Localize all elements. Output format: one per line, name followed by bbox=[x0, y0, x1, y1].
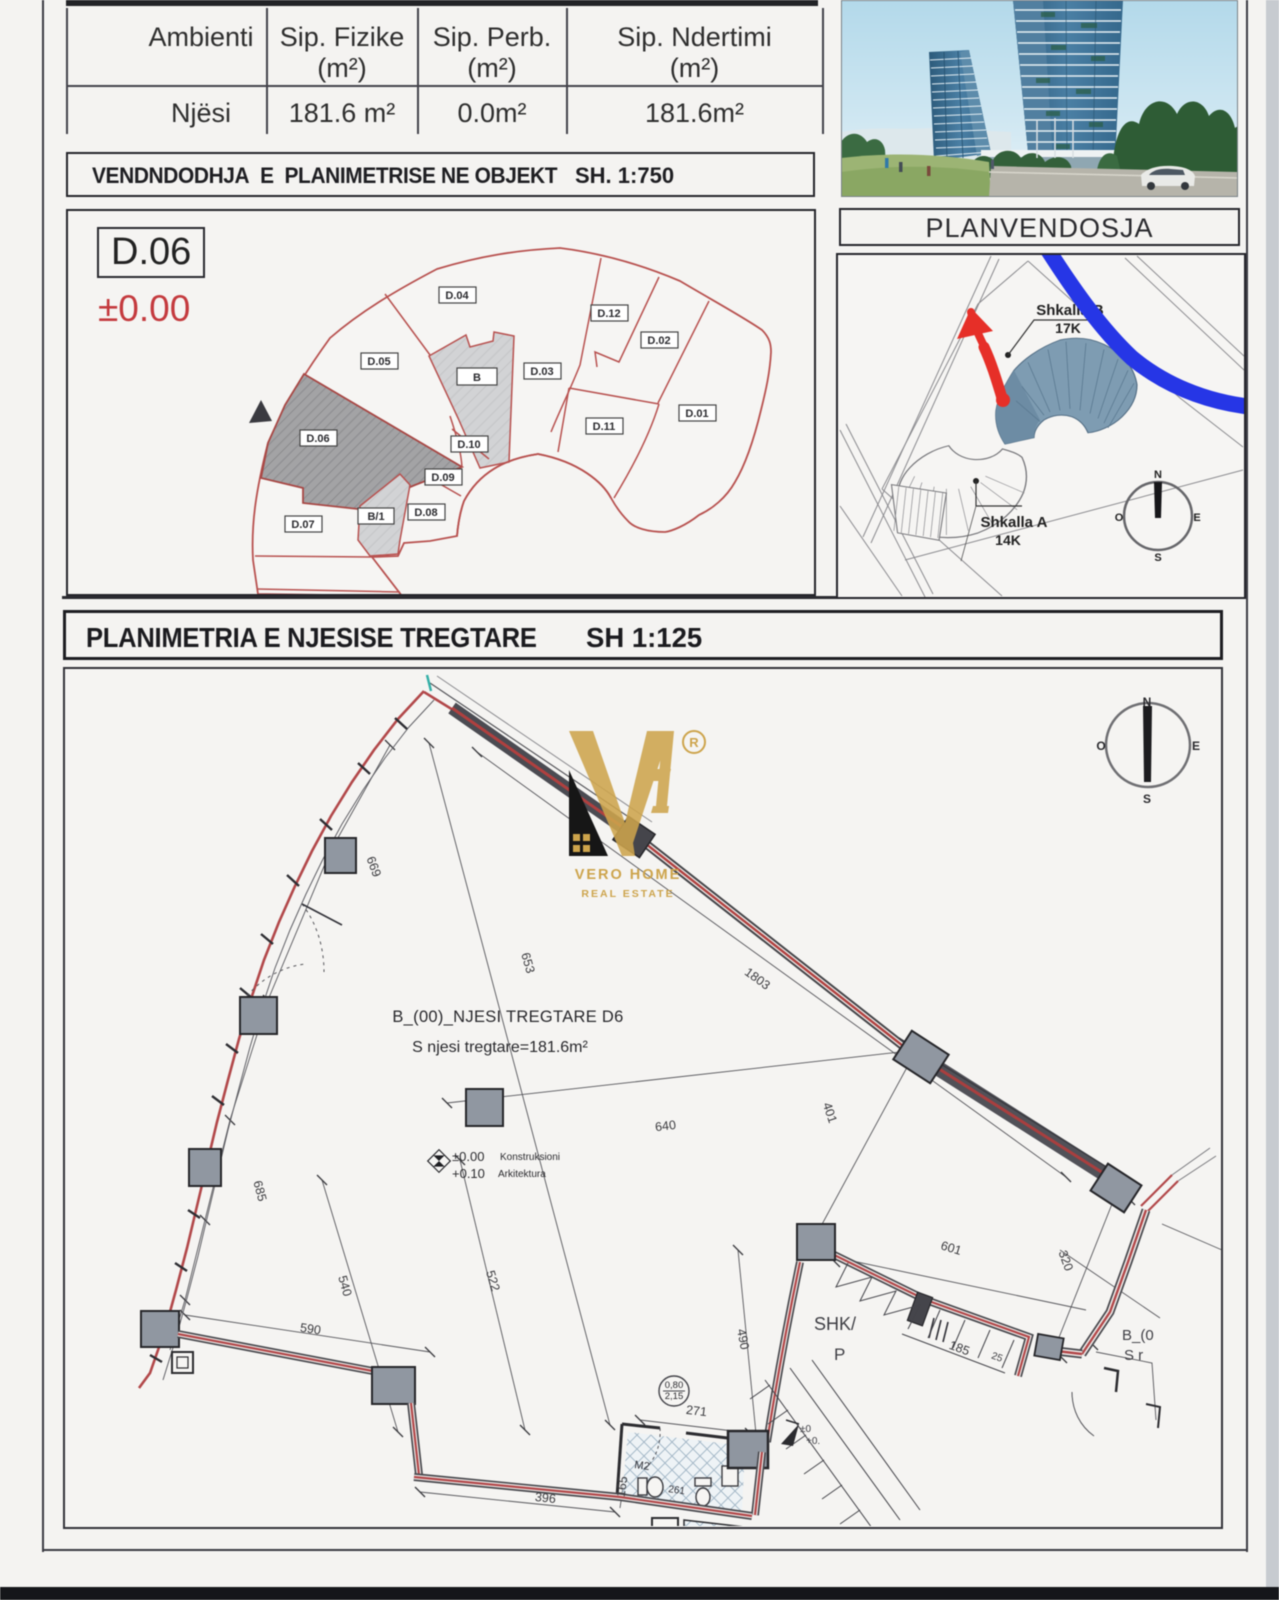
svg-text:B/1: B/1 bbox=[367, 511, 384, 523]
svg-text:E: E bbox=[1193, 512, 1200, 524]
svg-text:D.04: D.04 bbox=[445, 290, 469, 302]
svg-text:490: 490 bbox=[734, 1328, 752, 1351]
svg-text:E: E bbox=[1192, 739, 1200, 753]
svg-text:401: 401 bbox=[820, 1101, 840, 1125]
svg-text:165: 165 bbox=[614, 1475, 631, 1498]
svg-text:D.09: D.09 bbox=[431, 472, 454, 484]
svg-text:P: P bbox=[834, 1345, 845, 1364]
svg-text:+0.: +0. bbox=[806, 1436, 820, 1447]
svg-text:B_(00)_NJESI TREGTARE D6: B_(00)_NJESI TREGTARE D6 bbox=[392, 1008, 623, 1026]
svg-text:Arkitektura: Arkitektura bbox=[498, 1169, 546, 1180]
svg-text:D.11: D.11 bbox=[593, 421, 616, 433]
svg-text:O: O bbox=[1115, 512, 1124, 524]
svg-text:685: 685 bbox=[250, 1179, 269, 1203]
svg-text:185: 185 bbox=[947, 1338, 971, 1358]
svg-text:±0: ±0 bbox=[800, 1424, 811, 1435]
svg-text:2,15: 2,15 bbox=[665, 1391, 684, 1402]
svg-text:D.06: D.06 bbox=[306, 433, 329, 445]
svg-text:+0.10: +0.10 bbox=[452, 1166, 485, 1181]
svg-text:271: 271 bbox=[685, 1403, 707, 1419]
svg-text:17K: 17K bbox=[1055, 320, 1081, 336]
svg-text:S: S bbox=[1143, 792, 1151, 806]
svg-text:Shkalla A: Shkalla A bbox=[981, 514, 1048, 531]
svg-text:D.02: D.02 bbox=[647, 335, 670, 347]
svg-text:R: R bbox=[689, 735, 699, 750]
svg-text:D.12: D.12 bbox=[597, 308, 620, 320]
svg-text:0,80: 0,80 bbox=[665, 1380, 684, 1391]
svg-text:Konstruksioni: Konstruksioni bbox=[500, 1152, 560, 1163]
svg-text:25: 25 bbox=[990, 1351, 1005, 1365]
svg-text:653: 653 bbox=[518, 951, 537, 975]
svg-text:601: 601 bbox=[939, 1238, 963, 1258]
svg-text:N: N bbox=[1154, 469, 1162, 481]
svg-text:396: 396 bbox=[534, 1490, 556, 1506]
svg-text:320: 320 bbox=[1056, 1248, 1076, 1272]
svg-text:S njesi tregtare=181.6m²: S njesi tregtare=181.6m² bbox=[412, 1039, 588, 1056]
svg-text:D.07: D.07 bbox=[291, 519, 314, 531]
svg-text:D.05: D.05 bbox=[367, 356, 390, 368]
svg-text:B_(0: B_(0 bbox=[1122, 1327, 1154, 1344]
svg-text:640: 640 bbox=[654, 1118, 676, 1134]
svg-text:D.01: D.01 bbox=[685, 408, 708, 420]
svg-text:669: 669 bbox=[364, 854, 384, 878]
svg-text:B: B bbox=[473, 372, 481, 384]
svg-text:±0.00: ±0.00 bbox=[452, 1149, 484, 1164]
svg-text:590: 590 bbox=[299, 1321, 322, 1338]
svg-text:REAL ESTATE: REAL ESTATE bbox=[581, 888, 674, 900]
svg-text:SHK/: SHK/ bbox=[814, 1314, 856, 1334]
svg-text:O: O bbox=[1096, 739, 1105, 753]
svg-text:S: S bbox=[1154, 552, 1161, 564]
svg-text:VERO HOME: VERO HOME bbox=[575, 867, 682, 883]
svg-text:D.08: D.08 bbox=[414, 507, 437, 519]
svg-text:14K: 14K bbox=[995, 532, 1021, 548]
svg-text:522: 522 bbox=[483, 1269, 502, 1293]
svg-text:M2: M2 bbox=[634, 1459, 651, 1473]
svg-text:D.03: D.03 bbox=[530, 366, 553, 378]
svg-text:D.10: D.10 bbox=[457, 439, 480, 451]
svg-text:N: N bbox=[1143, 695, 1152, 709]
svg-text:S r: S r bbox=[1124, 1347, 1143, 1364]
svg-text:1803: 1803 bbox=[742, 965, 773, 993]
